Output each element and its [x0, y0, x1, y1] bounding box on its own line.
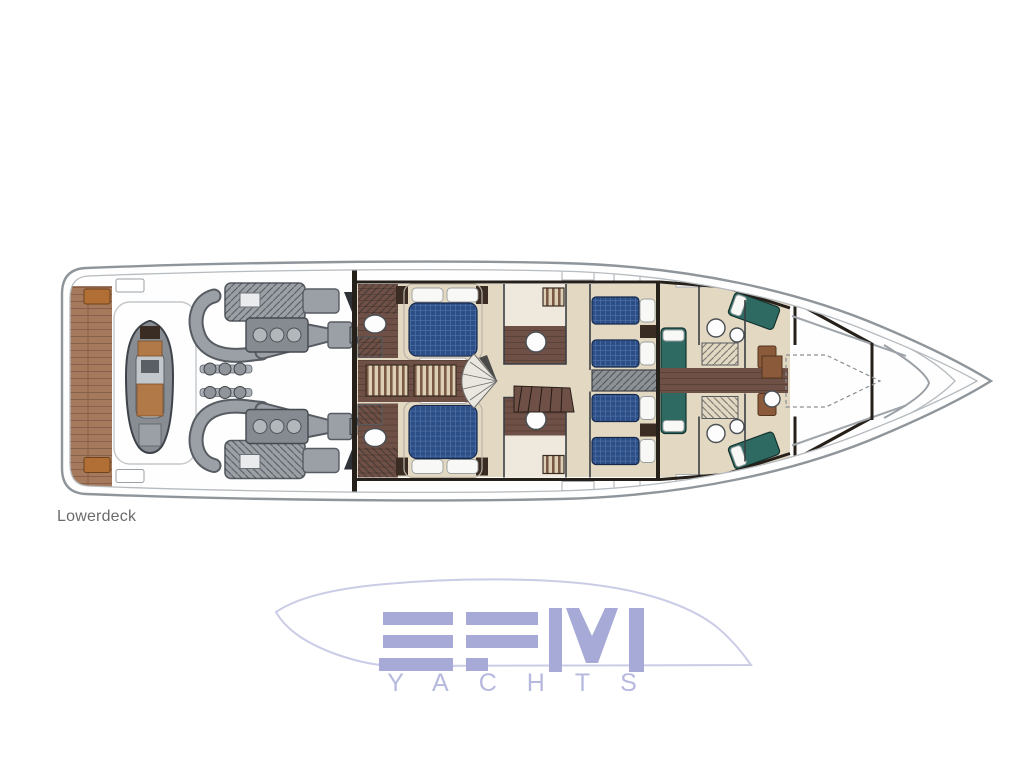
tender-engine-cover	[139, 424, 161, 446]
tender-console	[141, 360, 159, 373]
pillow	[412, 288, 443, 302]
logo-letter-f	[466, 612, 538, 671]
shower-icon	[702, 343, 738, 365]
single-bed	[592, 297, 639, 324]
fender-locker	[116, 279, 144, 292]
wardrobe-icon	[543, 288, 564, 306]
yacht-brochure-page: Lowerdeck YACHTS	[0, 0, 1024, 768]
pillow	[447, 288, 478, 302]
shower-icon	[358, 337, 382, 357]
pillow	[640, 299, 655, 322]
logo-letter-e	[379, 612, 453, 671]
tender-bow-locker	[140, 326, 160, 339]
gearbox	[328, 322, 352, 348]
sink-icon	[526, 332, 546, 352]
mattress	[409, 303, 477, 356]
sink-icon	[707, 319, 725, 337]
deck-label: Lowerdeck	[57, 508, 136, 526]
wardrobe-icon	[366, 365, 408, 396]
sink-icon	[730, 328, 744, 342]
windlass-cabinet	[762, 356, 782, 378]
pillow	[640, 342, 655, 365]
tender-sunpad	[137, 384, 163, 416]
pump-cluster	[200, 363, 252, 375]
day-head	[504, 284, 566, 364]
aft-stairs	[358, 284, 398, 314]
wardrobe-icon	[414, 365, 456, 396]
sink-icon	[364, 315, 386, 333]
logo-yachts-text: YACHTS	[387, 671, 667, 696]
guest-bathroom	[358, 284, 398, 358]
platform-cleat	[84, 289, 110, 304]
engine-room-bulkhead	[352, 267, 357, 494]
crew-bulkhead	[656, 281, 660, 480]
pillow	[663, 330, 684, 341]
tender-bow-seat	[138, 341, 162, 356]
logo-letter-m	[549, 608, 644, 672]
capstan-icon	[764, 391, 780, 407]
tender	[126, 321, 173, 453]
single-bed	[592, 340, 639, 367]
lowerdeck-floorplan	[0, 0, 1024, 560]
curved-stair	[514, 386, 574, 412]
